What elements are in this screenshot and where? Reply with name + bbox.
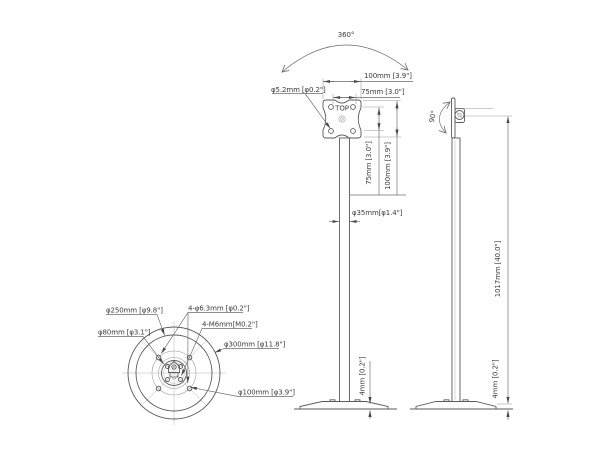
technical-drawing-canvas: 360° TOP 100mm [3.9"] 75mm [3.0"] [0,0,610,450]
front-pole [340,138,350,402]
hub-dia-label: φ80mm [φ3.1"] [98,329,151,337]
tilt-angle-label: 90° [428,110,438,124]
pole-height-dimension: 1017mm [40.0"] [465,116,512,404]
pole-height-label: 1017mm [40.0"] [494,240,502,297]
plate-top-marking: TOP [334,105,349,113]
front-view: TOP 100mm [3.9"] 75mm [3.0"] φ5.2mm [φ0.… [271,72,413,419]
through-holes-label: 4-φ6.3mm [φ0.2"] [188,305,250,313]
side-view: 90° 1017mm [40.0"] 4mm [0.2"] [410,98,513,420]
tilt-arc [439,102,450,133]
side-base-plate [416,402,496,410]
pole-dia-label: φ35mm[φ1.4"] [352,209,403,217]
front-base-thickness-label: 4mm [0.2"] [359,356,367,395]
swivel-arc [282,45,408,72]
front-width-dimensions: 100mm [3.9"] 75mm [3.0"] [323,72,413,104]
thread-holes-label: 4-M6mm[M0.2"] [202,321,258,329]
side-pole [452,138,460,402]
base-top-view: φ250mm [φ9.8"] 4-φ6.3mm [φ0.2"] 4-M6mm[M… [98,305,295,426]
mount-hole-dia-label: φ5.2mm [φ0.2"] [271,86,326,94]
front-base-plate [300,402,388,410]
side-base-thickness-dimension: 4mm [0.2"] [492,359,509,420]
floor-stand-drawing: 360° TOP 100mm [3.9"] 75mm [3.0"] [0,0,610,450]
mount-hole-callout: φ5.2mm [φ0.2"] [271,86,330,129]
circle-100-dia-label: φ100mm [φ3.9"] [238,389,295,397]
inner-plate-dia-label: φ250mm [φ9.8"] [106,307,163,315]
base-dia-label: φ300mm [φ11.8"] [224,341,286,349]
swivel-arc-annotation: 360° [282,31,408,72]
side-plate-edge [452,98,456,138]
hole-spacing-v-label: 75mm [3.0"] [365,141,373,185]
plate-width-label: 100mm [3.9"] [364,72,412,80]
side-base-thickness-label: 4mm [0.2"] [492,359,500,398]
swivel-angle-label: 360° [338,31,354,39]
plate-height-label: 100mm [3.9"] [384,142,392,190]
front-base-thickness-dimension: 4mm [0.2"] [359,356,371,419]
hole-spacing-h-label: 75mm [3.0"] [361,88,405,96]
